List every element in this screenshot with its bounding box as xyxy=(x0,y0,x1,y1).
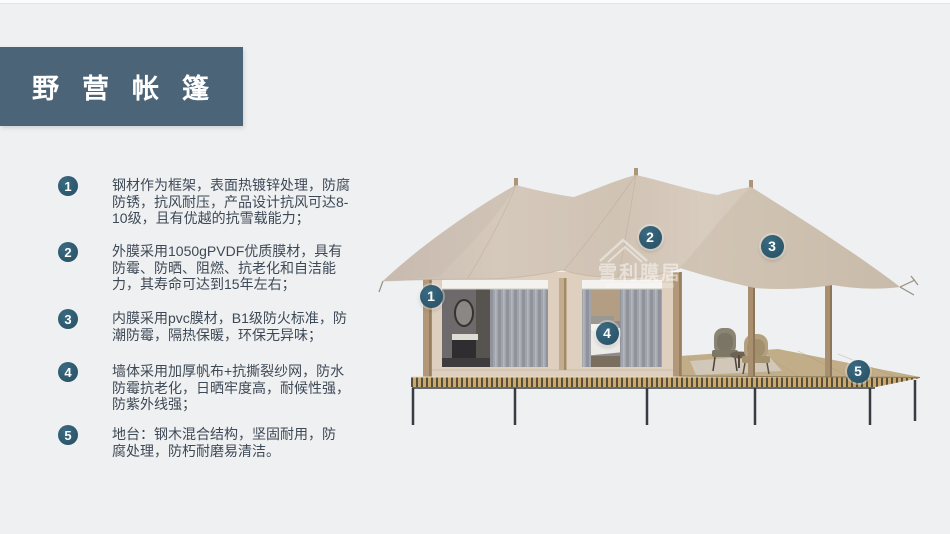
cabin-window-right xyxy=(582,280,662,367)
page-title: 野营帐篷 xyxy=(0,67,232,106)
feature-item: 4 墙体采用加厚帆布+抗撕裂纱网，防水 防霉抗老化，日晒牢度高，耐候性强， 防紫… xyxy=(58,362,378,413)
slide-top-edge xyxy=(0,0,950,4)
callout-marker-1: 1 xyxy=(420,285,443,308)
callout-marker-3: 3 xyxy=(761,235,784,258)
watermark-brand: 雪利膜居 xyxy=(598,261,682,284)
mirror-icon xyxy=(455,300,473,326)
cabin-window-left xyxy=(442,280,548,367)
tent-illustration: 雪利膜居 1 2 3 4 5 xyxy=(378,158,950,433)
feature-item: 1 钢材作为框架，表面热镀锌处理，防腐 防锈，抗风耐压，产品设计抗风可达8- 1… xyxy=(58,176,378,227)
feature-text: 内膜采用pvc膜材，B1级防火标准，防 潮防霉，隔热保暖，环保无异味； xyxy=(112,310,370,343)
curtain xyxy=(620,289,662,367)
feature-number-badge: 4 xyxy=(58,362,78,382)
feature-number-badge: 5 xyxy=(58,425,78,445)
platform-band xyxy=(411,376,920,387)
feature-text: 外膜采用1050gPVDF优质膜材，具有 防霉、防晒、阻燃、抗老化和自洁能 力，… xyxy=(112,243,370,293)
feature-item: 2 外膜采用1050gPVDF优质膜材，具有 防霉、防晒、阻燃、抗老化和自洁能 … xyxy=(58,242,378,293)
feature-text: 墙体采用加厚帆布+抗撕裂纱网，防水 防霉抗老化，日晒牢度高，耐候性强， 防紫外线… xyxy=(112,363,370,413)
page-title-bar: 野营帐篷 xyxy=(0,47,243,126)
feature-number-badge: 3 xyxy=(58,309,78,329)
feature-number-badge: 1 xyxy=(58,176,78,196)
callout-marker-5: 5 xyxy=(847,360,870,383)
feature-number-badge: 2 xyxy=(58,242,78,262)
curtain xyxy=(490,289,548,367)
feature-item: 5 地台：钢木混合结构，坚固耐用，防 腐处理，防朽耐磨易清洁。 xyxy=(58,425,378,459)
tent-drawing: 雪利膜居 xyxy=(378,158,950,433)
feature-text: 钢材作为框架，表面热镀锌处理，防腐 防锈，抗风耐压，产品设计抗风可达8- 10级… xyxy=(112,177,370,227)
callout-marker-2: 2 xyxy=(639,226,662,249)
slide-canvas: 野营帐篷 1 钢材作为框架，表面热镀锌处理，防腐 防锈，抗风耐压，产品设计抗风可… xyxy=(0,0,950,534)
callout-marker-4: 4 xyxy=(596,322,619,345)
feature-text: 地台：钢木混合结构，坚固耐用，防 腐处理，防朽耐磨易清洁。 xyxy=(112,426,370,459)
feature-item: 3 内膜采用pvc膜材，B1级防火标准，防 潮防霉，隔热保暖，环保无异味； xyxy=(58,309,378,343)
